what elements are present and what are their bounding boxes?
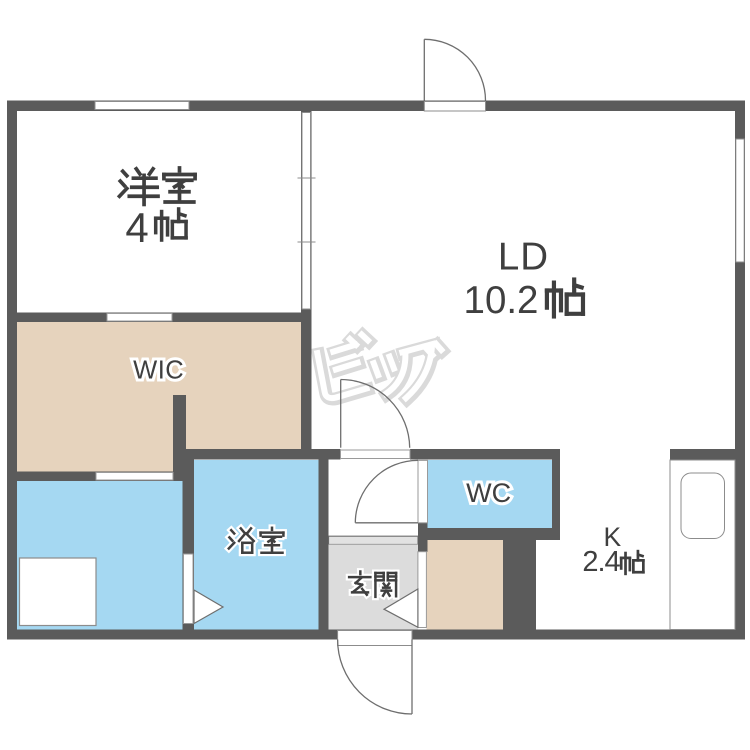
svg-text:WIC: WIC bbox=[133, 357, 184, 385]
svg-text:10.2: 10.2 bbox=[464, 279, 539, 322]
svg-text:4: 4 bbox=[125, 204, 148, 251]
svg-text:2.4: 2.4 bbox=[582, 546, 620, 578]
svg-text:WC: WC bbox=[466, 478, 511, 508]
svg-text:LD: LD bbox=[498, 236, 549, 279]
